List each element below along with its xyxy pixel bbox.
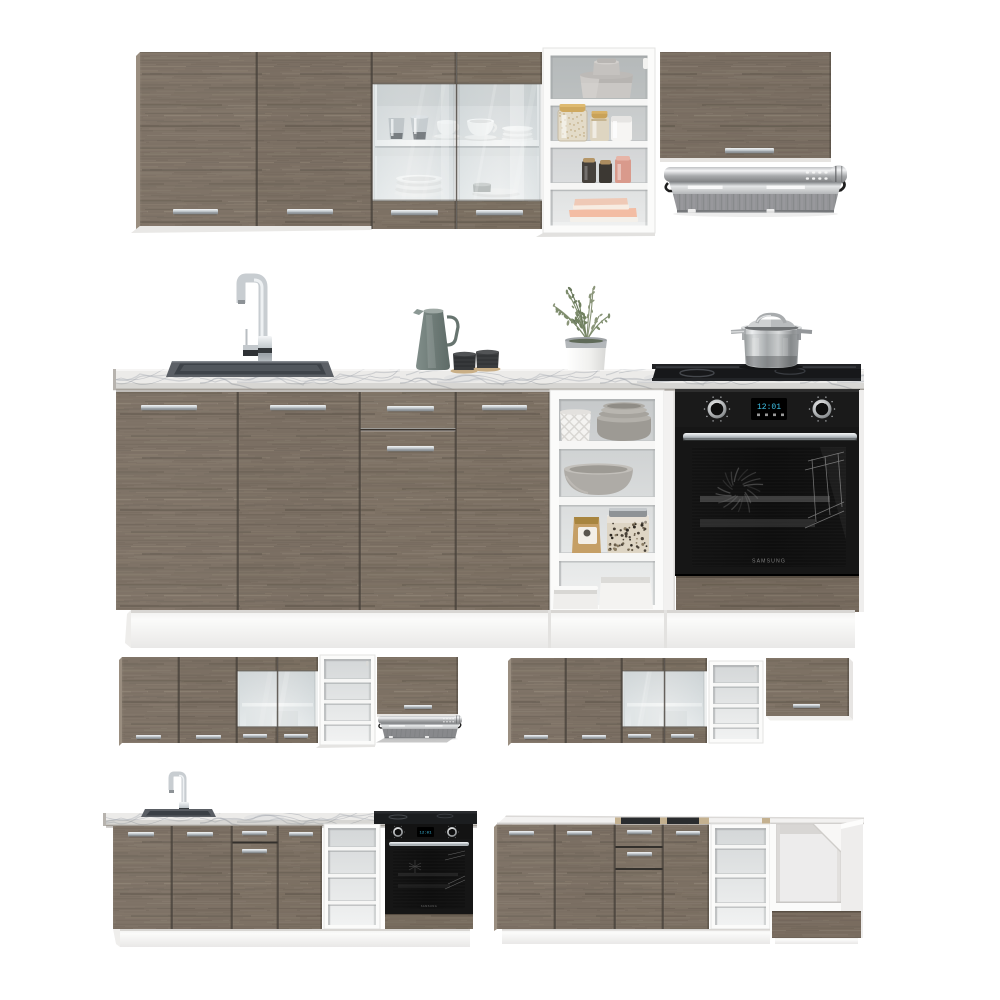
svg-text:12:01: 12:01 bbox=[757, 403, 781, 412]
svg-text:SAMSUNG: SAMSUNG bbox=[752, 559, 786, 565]
svg-text:SAMSUNG: SAMSUNG bbox=[421, 904, 438, 908]
svg-text:12:01: 12:01 bbox=[419, 832, 432, 836]
